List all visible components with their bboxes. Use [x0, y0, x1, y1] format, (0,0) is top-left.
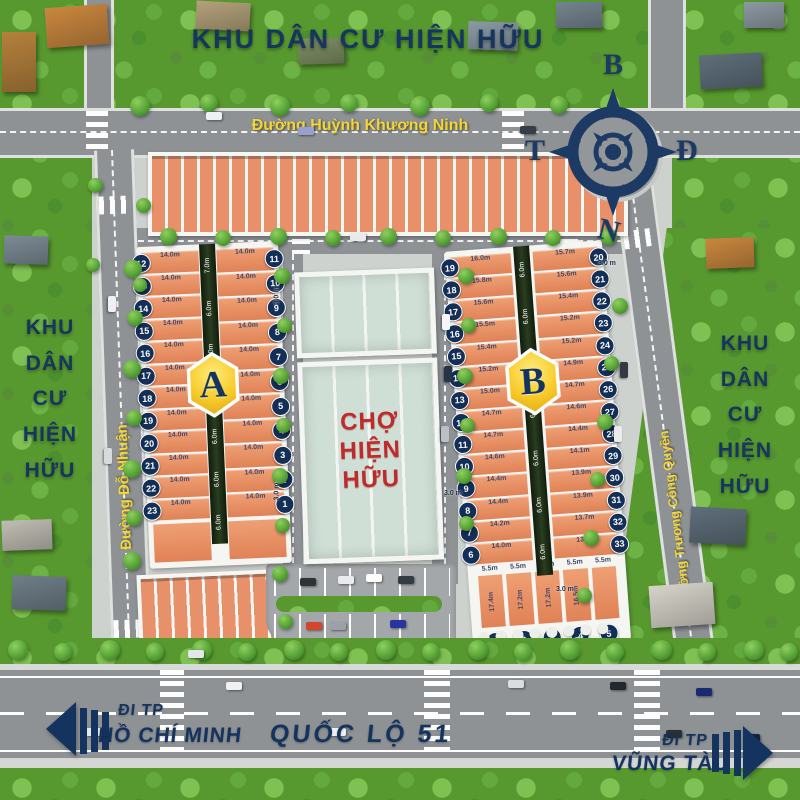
tree-icon [577, 588, 592, 603]
area-left-line: DÂN [14, 346, 86, 382]
lot-10[interactable]: 14.6m10 [464, 452, 526, 477]
parking-median [276, 596, 442, 612]
area-left-line: CƯ [14, 381, 86, 417]
lot-dimension: 14.4m [488, 497, 508, 505]
lot-width-label: 5.5m [595, 556, 611, 564]
car-icon [104, 448, 112, 464]
lot-dimension: 14.0m [165, 364, 185, 372]
tree-icon [200, 94, 218, 112]
lot-dimension: 14.7m [483, 431, 503, 439]
lot-20[interactable]: 15.7m20 [532, 247, 598, 272]
tree-icon [456, 468, 472, 484]
lot-17[interactable]: 15.6m17 [453, 297, 515, 322]
car-icon [108, 296, 116, 312]
lot-dimension: 16.0m [470, 254, 490, 262]
car-icon [226, 682, 242, 690]
lot-24[interactable]: 15.2m24 [539, 335, 605, 360]
dimension-tag: 3.0 m [556, 586, 574, 593]
area-left-line: HỮU [14, 453, 86, 489]
highway-label: QUỐC LỘ 51 [268, 720, 452, 749]
lot-width-label: 5.5m [482, 565, 498, 573]
tree-icon [123, 460, 141, 478]
road-centerline [444, 254, 446, 584]
lot-dimension: 14.7m [565, 381, 585, 389]
block-b: 16.0m1915.8m1815.6m1715.5m1615.4m1515.2m… [444, 240, 631, 650]
tree-icon [284, 640, 304, 660]
market-complex: CHỢ HIỆN HỮU [294, 268, 444, 565]
car-icon [206, 112, 222, 120]
lot-dimension: 15.0m [480, 387, 500, 395]
area-left-line: KHU [14, 310, 86, 346]
tree-icon [604, 356, 619, 371]
house-roof [1, 519, 52, 551]
tree-icon [275, 518, 290, 533]
lot-dimension: 14.0m [169, 454, 189, 462]
tree-icon [459, 516, 474, 531]
tree-icon [330, 643, 348, 661]
lot-dimension: 14.4m [486, 475, 506, 483]
tree-icon [612, 298, 628, 314]
lot-dimension: 14.9m [563, 359, 583, 367]
lot-number-badge: 15 [446, 346, 466, 366]
car-icon [696, 688, 712, 696]
lot-dimension: 14.0m [242, 420, 262, 428]
house-roof [689, 507, 747, 546]
house-roof [4, 235, 49, 265]
lot-depth-label: 17.4m [488, 591, 496, 611]
house-roof [705, 237, 754, 269]
tree-icon [88, 178, 103, 193]
lot-dimension: 14.4m [568, 425, 588, 433]
tree-icon [54, 643, 72, 661]
compass-west-label: T [525, 134, 545, 168]
tree-icon [127, 310, 143, 326]
lot-21[interactable]: 14.0m21 [150, 453, 208, 476]
tree-icon [606, 643, 624, 661]
lot-depth-label: 17.2m [545, 587, 553, 607]
alley-width-label: 6.0m [206, 300, 214, 316]
area-right-line: KHU [708, 326, 782, 362]
tree-icon [461, 318, 476, 333]
tree-icon [276, 418, 291, 433]
tree-icon [124, 260, 142, 278]
area-right-line: DÂN [708, 362, 782, 398]
arrow-left-icon [46, 702, 76, 756]
lot-13[interactable]: 14.0m13 [142, 273, 200, 296]
tree-icon [215, 230, 231, 246]
lot-dimension: 14.1m [570, 447, 590, 455]
tree-icon [458, 268, 474, 284]
lot-dimension: 15.6m [473, 299, 493, 307]
lot-dimension: 14.0m [166, 386, 186, 394]
lot-15[interactable]: 14.0m15 [144, 318, 202, 341]
car-icon [610, 682, 626, 690]
lot-2[interactable]: 5.5m17.2m2 [506, 572, 534, 626]
block-a-wide-lot-left[interactable] [153, 522, 212, 562]
lot-dimension: 14.0m [170, 476, 190, 484]
dimension-tag: 3.0 m [598, 260, 616, 267]
tree-icon [590, 472, 605, 487]
tree-icon [468, 640, 488, 660]
lot-number-badge: 20 [139, 434, 159, 454]
tree-icon [410, 96, 430, 116]
lot-12[interactable]: 14.0m12 [141, 250, 199, 273]
tree-icon [480, 94, 498, 112]
lot-number-badge: 18 [137, 389, 157, 409]
area-label-left: KHU DÂN CƯ HIỆN HỮU [14, 310, 86, 488]
tree-icon [780, 643, 798, 661]
tree-icon [100, 640, 120, 660]
car-icon [620, 362, 628, 378]
crosswalk [99, 196, 128, 215]
tree-icon [490, 228, 507, 245]
lot-dimension: 14.0m [168, 431, 188, 439]
car-icon [306, 622, 322, 630]
tree-icon [422, 643, 440, 661]
alley-width-label: 6.0m [539, 544, 547, 560]
lot-number-badge: 11 [453, 434, 473, 454]
lot-15[interactable]: 15.4m15 [456, 341, 518, 366]
lot-depth-label: 17.2m [516, 589, 524, 609]
area-right-line: CƯ [708, 397, 782, 433]
lot-dimension: 13.9m [571, 469, 591, 477]
tree-icon [277, 318, 292, 333]
lot-dimension: 15.5m [475, 321, 495, 329]
parking-lot [266, 564, 456, 648]
tree-icon [460, 418, 475, 433]
lot-8[interactable]: 14.4m8 [467, 496, 529, 521]
compass-rose [549, 88, 677, 216]
lot-dimension: 14.0m [167, 409, 187, 417]
tree-icon [270, 96, 290, 116]
lot-3[interactable]: 5.5m17.2m3 [535, 570, 563, 624]
lot-dimension: 13.7m [574, 513, 594, 521]
direction-vungtau: ĐI TP VŨNG TÀU [600, 726, 790, 796]
lot-1[interactable]: 5.5m17.4m1 [478, 574, 506, 628]
lot-dimension: 14.0m [491, 541, 511, 549]
direction-hcm: ĐI TP HỒ CHÍ MINH [46, 698, 246, 768]
lot-8[interactable]: 14.0m8 [219, 321, 277, 346]
tree-icon [744, 640, 764, 660]
area-label-top: KHU DÂN CƯ HIỆN HỮU [168, 24, 568, 55]
tree-icon [435, 230, 451, 246]
lot-4[interactable]: 14.0m4 [224, 419, 282, 444]
tree-icon [325, 230, 341, 246]
lot-11[interactable]: 14.0m11 [216, 247, 274, 272]
lane-line [0, 676, 800, 678]
lot-dimension: 14.6m [566, 403, 586, 411]
house-roof [45, 4, 110, 48]
lot-dimension: 14.0m [236, 272, 256, 280]
lot-23[interactable]: 15.2m23 [537, 313, 603, 338]
lot-dimension: 15.6m [557, 270, 577, 278]
tree-icon [123, 552, 141, 570]
lot-29[interactable]: 14.1m29 [547, 445, 613, 470]
lot-dimension: 15.4m [477, 343, 497, 351]
lot-10[interactable]: 14.0m10 [217, 272, 275, 297]
tree-icon [380, 228, 397, 245]
lot-23[interactable]: 14.0m23 [152, 498, 210, 521]
arrow-bar [723, 732, 730, 774]
lot-dimension: 15.2m [561, 337, 581, 345]
car-icon [390, 620, 406, 628]
tree-icon [126, 510, 142, 526]
dimension-tag: 3.0 m [273, 287, 280, 305]
lot-dimension: 14.6m [485, 453, 505, 461]
tree-icon [136, 198, 151, 213]
arrow-right-icon [743, 726, 773, 780]
lot-dimension: 13.9m [573, 491, 593, 499]
alley-width-label: 6.0m [213, 471, 221, 487]
lot-width-label: 5.5m [510, 563, 526, 571]
tree-icon [698, 643, 716, 661]
compass-east-label: Đ [676, 134, 698, 168]
area-left-line: HIỆN [14, 417, 86, 453]
car-icon [350, 233, 366, 241]
lot-number-badge: 21 [140, 456, 160, 476]
lot-dimension: 14.0m [243, 444, 263, 452]
arrow-bar [80, 708, 87, 754]
lot-dimension: 14.0m [240, 371, 260, 379]
car-icon [444, 366, 452, 382]
highway-tree-row [0, 638, 800, 666]
lot-number-badge: 22 [141, 479, 161, 499]
tree-icon [583, 530, 599, 546]
car-icon [614, 426, 622, 442]
tree-icon [270, 228, 287, 245]
tree-icon [8, 640, 28, 660]
lot-dimension: 14.0m [246, 493, 266, 501]
area-label-right: KHU DÂN CƯ HIỆN HỮU [708, 326, 782, 504]
lot-number-badge: 3 [273, 445, 293, 465]
direction-hcm-line2: HỒ CHÍ MINH [97, 724, 244, 748]
alley-width-label: 6.0m [215, 514, 223, 530]
house-roof [744, 2, 784, 28]
lot-dimension: 14.7m [482, 409, 502, 417]
block-a: 14.0m1214.0m1314.0m1414.0m1514.0m1614.0m… [136, 241, 292, 569]
alley-width-label: 6.0m [522, 309, 530, 325]
lot-20[interactable]: 14.0m20 [149, 430, 207, 453]
lot-dimension: 15.2m [560, 314, 580, 322]
alley-width-label: 6.0m [212, 429, 220, 445]
tree-icon [340, 94, 358, 112]
tree-icon [514, 643, 532, 661]
arrow-bar [734, 730, 741, 776]
area-right-line: HIỆN [708, 433, 782, 469]
compass-north-label: B [603, 48, 623, 82]
lot-19[interactable]: 14.0m19 [148, 408, 206, 431]
tree-icon [123, 360, 141, 378]
tree-icon [652, 640, 672, 660]
lot-number-badge: 13 [449, 390, 469, 410]
arrow-bar [712, 734, 719, 772]
car-icon [338, 576, 354, 584]
lot-dimension: 15.2m [478, 365, 498, 373]
lot-dimension: 14.0m [160, 251, 180, 259]
tree-icon [133, 278, 147, 292]
lot-22[interactable]: 15.4m22 [536, 291, 602, 316]
lot-dimension: 14.0m [239, 346, 259, 354]
market-line-3: HỮU [301, 463, 442, 497]
lot-dimension: 14.0m [241, 395, 261, 403]
car-icon [520, 126, 536, 134]
lot-dimension: 14.0m [164, 341, 184, 349]
tree-icon [545, 230, 561, 246]
lot-dimension: 14.0m [244, 469, 264, 477]
lot-14[interactable]: 14.0m14 [143, 295, 201, 318]
tree-icon [146, 643, 164, 661]
tree-icon [86, 258, 100, 272]
lot-31[interactable]: 13.9m31 [550, 489, 616, 514]
direction-vt-line1: ĐI TP [661, 732, 709, 750]
lot-dimension: 14.0m [161, 274, 181, 282]
lot-9[interactable]: 14.0m9 [218, 296, 276, 321]
lot-21[interactable]: 15.6m21 [534, 269, 600, 294]
lot-dimension: 14.0m [235, 248, 255, 256]
lot-dimension: 15.7m [555, 248, 575, 256]
tree-icon [376, 640, 396, 660]
dimension-tag: 3.0 m [273, 483, 280, 501]
house-roof [649, 582, 716, 628]
tree-icon [274, 268, 290, 284]
alley-width-label: 7.0m [204, 257, 212, 273]
market-label: CHỢ HIỆN HỮU [299, 405, 442, 496]
house-roof [699, 52, 763, 89]
lot-dimension: 14.0m [171, 498, 191, 506]
car-icon [508, 680, 524, 688]
house-roof [2, 32, 36, 92]
lot-number-badge: 16 [135, 344, 155, 364]
lot-number-badge: 6 [461, 545, 481, 565]
lot-dimension: 14.0m [163, 319, 183, 327]
market-building-north [294, 268, 437, 359]
direction-hcm-line1: ĐI TP [117, 702, 165, 720]
lot-11[interactable]: 14.7m11 [463, 430, 525, 455]
car-icon [398, 576, 414, 584]
crosswalk [86, 111, 108, 149]
car-icon [441, 426, 449, 442]
lot-22[interactable]: 14.0m22 [151, 475, 209, 498]
house-roof [11, 575, 66, 611]
alley-width-label: 6.0m [532, 450, 540, 466]
car-icon [330, 622, 346, 630]
lot-16[interactable]: 14.0m16 [145, 340, 203, 363]
lot-dimension: 14.0m [238, 321, 258, 329]
lot-width-label: 5.5m [567, 558, 583, 566]
area-right-line: HỮU [708, 469, 782, 505]
block-b-bottom-row: 5.5m17.4m15.5m17.2m25.5m17.2m35.5m16.5m4… [476, 566, 621, 628]
lot-dimension: 14.2m [490, 519, 510, 527]
lot-number-badge: 23 [142, 501, 162, 521]
master-plan-map: Đường Huỳnh Khương Ninh Đường Đỗ Nhuận Đ… [0, 0, 800, 800]
street-name-top: Đường Huỳnh Khương Ninh [220, 117, 500, 135]
tree-icon [597, 414, 613, 430]
car-icon [366, 574, 382, 582]
tree-icon [457, 368, 473, 384]
tree-icon [278, 614, 293, 629]
alley-width-label: 6.0m [519, 262, 527, 278]
car-icon [188, 650, 204, 658]
lot-5[interactable]: 5.5m5 [591, 566, 619, 620]
lot-3[interactable]: 14.0m3 [225, 443, 283, 468]
lot-9[interactable]: 14.4m9 [466, 474, 528, 499]
lot-dimension: 14.0m [162, 296, 182, 304]
lot-number-badge: 5 [271, 396, 291, 416]
alley-width-label: 6.0m [536, 497, 544, 513]
car-icon [442, 314, 450, 330]
lot-dimension: 15.4m [558, 292, 578, 300]
tree-icon [272, 566, 288, 582]
compass-graphic [549, 88, 677, 216]
lot-dimension: 14.0m [237, 297, 257, 305]
lot-7[interactable]: 14.2m7 [469, 518, 531, 543]
tree-icon [273, 368, 289, 384]
tree-icon [160, 228, 177, 245]
lot-dimension: 15.8m [472, 277, 492, 285]
car-icon [300, 578, 316, 586]
car-icon [298, 127, 314, 135]
dimension-tag: 3.0 m [444, 490, 462, 497]
tree-icon [560, 640, 580, 660]
tree-icon [126, 410, 142, 426]
tree-icon [130, 96, 150, 116]
tree-icon [238, 643, 256, 661]
lot-number-badge: 18 [441, 280, 461, 300]
